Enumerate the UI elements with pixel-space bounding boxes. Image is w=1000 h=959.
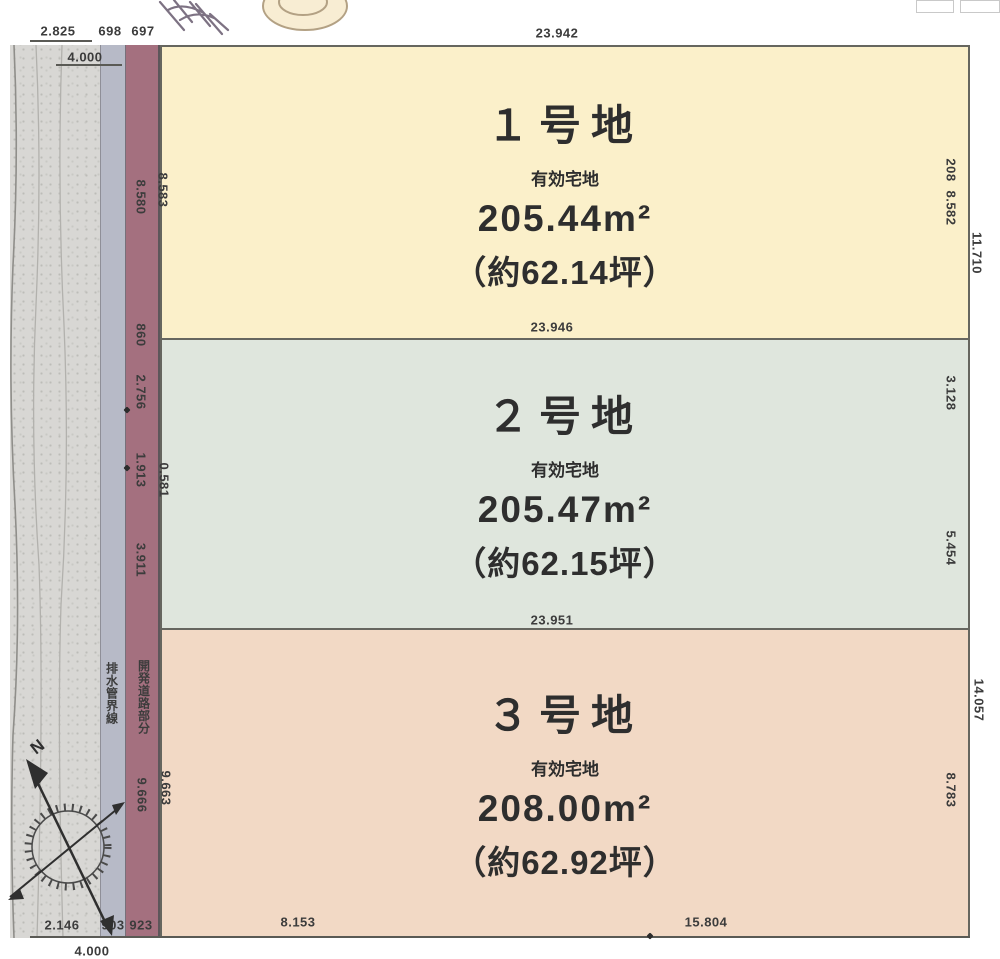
dim-left-strip-9666: 9.666 <box>135 777 150 812</box>
dim-bottom-left-c: 923 <box>129 918 152 933</box>
dim-bottom-seg-b: 15.804 <box>685 915 728 930</box>
plot-3-area-sqm: 208.00m² <box>478 788 652 830</box>
dim-top-road-width: 4.000 <box>67 50 102 65</box>
dim-top-seg-b: 698 <box>98 24 121 39</box>
plot-1-area-sqm: 205.44m² <box>478 198 652 240</box>
sidewalk-strip-label: 排水管界線 <box>104 662 121 725</box>
dim-top-seg-c: 697 <box>131 24 154 39</box>
corner-box-1 <box>916 0 954 13</box>
dim-top-seg-a: 2.825 <box>40 24 75 39</box>
dim-right-p3-outer: 14.057 <box>972 679 987 722</box>
plot-2-name: ２号地 <box>487 383 643 444</box>
dim-left-strip-p1: 8.580 <box>134 179 149 214</box>
sketch-decoration <box>140 0 360 40</box>
plots-container: １号地 有効宅地 205.44m² （約62.14坪） ２号地 有効宅地 205… <box>160 45 970 938</box>
plot-map: １号地 有効宅地 205.44m² （約62.14坪） ２号地 有効宅地 205… <box>0 0 1000 959</box>
dim-line-bottom <box>30 936 970 938</box>
dim-right-p1-outer: 11.710 <box>970 232 985 274</box>
plot-3: ３号地 有効宅地 208.00m² （約62.92坪） <box>162 630 968 936</box>
plot-1-category: 有効宅地 <box>531 165 599 190</box>
compass-north-label: N <box>27 736 48 759</box>
dim-left-edge-p1: 8.583 <box>156 172 171 207</box>
dim-left-strip-860: 860 <box>134 323 149 346</box>
plot-1: １号地 有効宅地 205.44m² （約62.14坪） <box>162 47 968 340</box>
dim-right-p1-b: 8.582 <box>944 190 959 225</box>
dim-right-p1-a: 208 <box>944 158 959 181</box>
plot-3-category: 有効宅地 <box>531 755 599 780</box>
dim-line-top-road <box>56 64 122 66</box>
dim-p2-bottom-width: 23.951 <box>531 613 574 628</box>
dim-left-edge-p2: 0.581 <box>157 462 172 497</box>
dim-right-p3-b: 8.783 <box>944 772 959 807</box>
dim-bottom-seg-a: 8.153 <box>280 915 315 930</box>
dim-left-strip-1913: 1.913 <box>134 452 149 487</box>
dim-left-edge-p3: 9.663 <box>159 770 174 805</box>
corner-box-2 <box>960 0 1000 13</box>
dim-right-p2-b: 5.454 <box>944 530 959 565</box>
dim-left-strip-3911: 3.911 <box>134 543 149 577</box>
plot-2-category: 有効宅地 <box>531 456 599 481</box>
plot-2: ２号地 有効宅地 205.47m² （約62.15坪） <box>162 340 968 630</box>
devstrip-label: 開発道路部分 <box>136 660 153 735</box>
plot-1-name: １号地 <box>487 92 643 153</box>
dim-top-width: 23.942 <box>536 26 579 41</box>
dim-bottom-road-width: 4.000 <box>74 944 109 959</box>
plot-3-name: ３号地 <box>487 682 643 743</box>
plot-1-area-tsubo: （約62.14坪） <box>453 246 677 294</box>
plot-2-area-tsubo: （約62.15坪） <box>453 537 677 585</box>
dim-left-strip-2756: 2.756 <box>134 374 149 409</box>
plot-2-area-sqm: 205.47m² <box>478 489 652 531</box>
dim-line-top-left <box>30 40 92 42</box>
compass-icon: N <box>8 725 128 940</box>
dim-right-p2-a: 3.128 <box>944 375 959 410</box>
plot-3-area-tsubo: （約62.92坪） <box>453 836 677 884</box>
dim-p1-bottom-width: 23.946 <box>531 320 574 335</box>
